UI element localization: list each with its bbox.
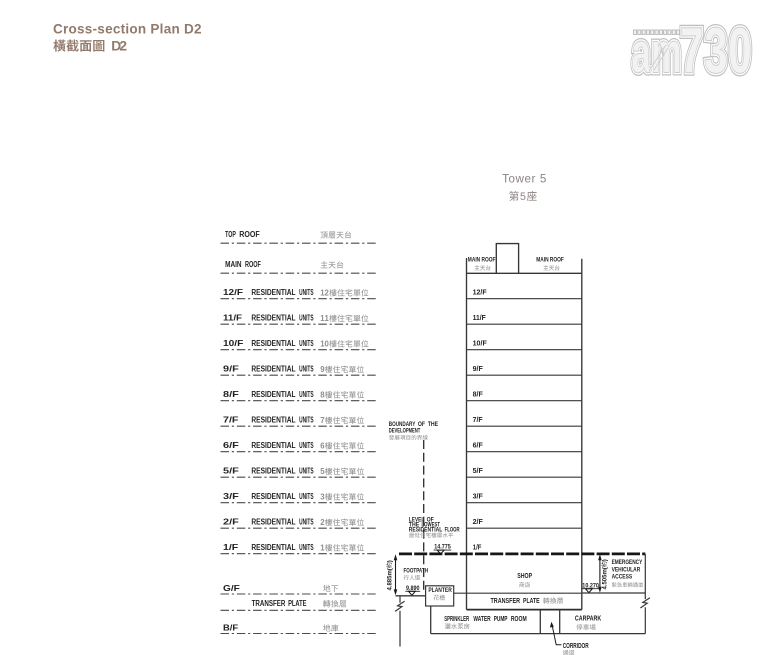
svg-text:THE: THE	[428, 422, 438, 428]
svg-text:6: 6	[320, 442, 325, 451]
svg-text:RESIDENTIAL: RESIDENTIAL	[251, 467, 295, 476]
svg-text:RESIDENTIAL: RESIDENTIAL	[409, 528, 443, 534]
svg-text:Tower 5: Tower 5	[502, 173, 547, 186]
svg-text:G/F: G/F	[223, 584, 240, 593]
svg-text:2/F: 2/F	[473, 517, 484, 526]
svg-text:MAIN ROOF: MAIN ROOF	[536, 256, 564, 263]
svg-text:RESIDENTIAL: RESIDENTIAL	[251, 339, 295, 348]
svg-text:TRANSFER: TRANSFER	[252, 599, 286, 608]
svg-text:10: 10	[320, 340, 329, 349]
svg-text:EMERGENCY: EMERGENCY	[612, 559, 643, 566]
svg-text:12/F: 12/F	[473, 288, 487, 297]
svg-text:SHOP: SHOP	[517, 571, 532, 580]
svg-text:UNITS: UNITS	[299, 492, 314, 501]
svg-text:1/F: 1/F	[473, 543, 482, 552]
svg-text:3/F: 3/F	[223, 492, 239, 501]
svg-text:11: 11	[320, 314, 329, 323]
svg-text:FLOOR: FLOOR	[445, 528, 460, 534]
svg-text:2/F: 2/F	[223, 518, 239, 527]
svg-text:Cross-section Plan D2: Cross-section Plan D2	[53, 22, 202, 37]
svg-text:UNITS: UNITS	[299, 416, 314, 425]
svg-text:UNITS: UNITS	[299, 543, 314, 552]
svg-text:4.505m(: 4.505m(	[602, 567, 608, 589]
svg-text:10/F: 10/F	[473, 339, 488, 348]
svg-text:CARPARK: CARPARK	[575, 613, 602, 622]
svg-text:DEVELOPMENT: DEVELOPMENT	[389, 429, 421, 435]
svg-text:PLATE: PLATE	[523, 598, 540, 605]
svg-text:): )	[387, 560, 393, 562]
svg-text:OF: OF	[418, 422, 425, 428]
svg-text:BOUNDARY: BOUNDARY	[389, 422, 416, 428]
svg-text:PUMP: PUMP	[494, 616, 508, 623]
svg-text:7/F: 7/F	[223, 416, 239, 425]
svg-text:5: 5	[520, 191, 526, 203]
svg-text:UNITS: UNITS	[299, 390, 314, 399]
svg-text:5: 5	[320, 467, 325, 476]
svg-text:MAIN: MAIN	[225, 260, 242, 269]
svg-text:1: 1	[320, 544, 325, 553]
svg-text:12/F: 12/F	[223, 288, 243, 297]
svg-text:RESIDENTIAL: RESIDENTIAL	[251, 543, 295, 552]
svg-text:B/F: B/F	[223, 623, 238, 632]
svg-text:730: 730	[680, 16, 752, 87]
svg-text:1/F: 1/F	[223, 543, 238, 552]
svg-text:): )	[602, 559, 608, 561]
svg-text:6/F: 6/F	[473, 441, 484, 450]
svg-text:UNITS: UNITS	[299, 339, 314, 348]
svg-text:FOOTPATH: FOOTPATH	[404, 568, 429, 575]
svg-text:UNITS: UNITS	[299, 288, 314, 297]
svg-text:10/F: 10/F	[223, 339, 243, 348]
svg-text:PLANTER: PLANTER	[428, 587, 452, 594]
svg-text:RESIDENTIAL: RESIDENTIAL	[251, 365, 295, 374]
svg-text:RESIDENTIAL: RESIDENTIAL	[251, 390, 295, 399]
svg-text:RESIDENTIAL: RESIDENTIAL	[251, 518, 295, 527]
svg-text:VEHICULAR: VEHICULAR	[612, 566, 641, 573]
svg-text:SPRINKLER: SPRINKLER	[444, 616, 469, 623]
svg-text:3/F: 3/F	[473, 492, 484, 501]
svg-text:RESIDENTIAL: RESIDENTIAL	[251, 492, 295, 501]
svg-text:TOP: TOP	[225, 230, 236, 239]
svg-text:UNITS: UNITS	[299, 467, 314, 476]
svg-text:5/F: 5/F	[473, 466, 484, 475]
svg-text:2: 2	[320, 518, 325, 527]
svg-text:ACCESS: ACCESS	[612, 573, 633, 580]
svg-text:PLATE: PLATE	[288, 599, 307, 608]
svg-text:UNITS: UNITS	[299, 365, 314, 374]
svg-text:UNITS: UNITS	[299, 441, 314, 450]
svg-text:UNITS: UNITS	[299, 518, 314, 527]
svg-text:7: 7	[320, 416, 324, 425]
svg-text:8: 8	[320, 391, 325, 400]
svg-text:5/F: 5/F	[223, 467, 239, 476]
svg-text:8/F: 8/F	[223, 390, 239, 399]
svg-text:7/F: 7/F	[473, 415, 483, 424]
svg-text:3: 3	[320, 493, 325, 502]
svg-text:ROOF: ROOF	[245, 260, 261, 269]
svg-text:UNITS: UNITS	[299, 314, 314, 323]
svg-text:MAIN ROOF: MAIN ROOF	[468, 256, 496, 263]
svg-text:11/F: 11/F	[223, 314, 242, 323]
svg-text:TRANSFER: TRANSFER	[491, 598, 521, 605]
svg-text:CORRIDOR: CORRIDOR	[563, 643, 589, 650]
svg-text:RESIDENTIAL: RESIDENTIAL	[251, 288, 295, 297]
svg-text:6/F: 6/F	[223, 441, 239, 450]
svg-text:4.885m(: 4.885m(	[387, 568, 393, 590]
svg-text:D2: D2	[111, 39, 127, 54]
svg-text:11/F: 11/F	[473, 313, 487, 322]
svg-text:9/F: 9/F	[473, 364, 484, 373]
svg-text:RESIDENTIAL: RESIDENTIAL	[251, 441, 295, 450]
svg-text:RESIDENTIAL: RESIDENTIAL	[251, 314, 295, 323]
svg-text:ROOM: ROOM	[511, 616, 527, 623]
svg-text:8/F: 8/F	[473, 390, 484, 399]
svg-text:ROOF: ROOF	[239, 230, 259, 239]
svg-text:RESIDENTIAL: RESIDENTIAL	[251, 416, 295, 425]
svg-text:9: 9	[320, 365, 325, 374]
svg-text:WATER: WATER	[473, 616, 490, 623]
svg-text:9/F: 9/F	[223, 365, 239, 374]
svg-text:12: 12	[320, 289, 329, 298]
